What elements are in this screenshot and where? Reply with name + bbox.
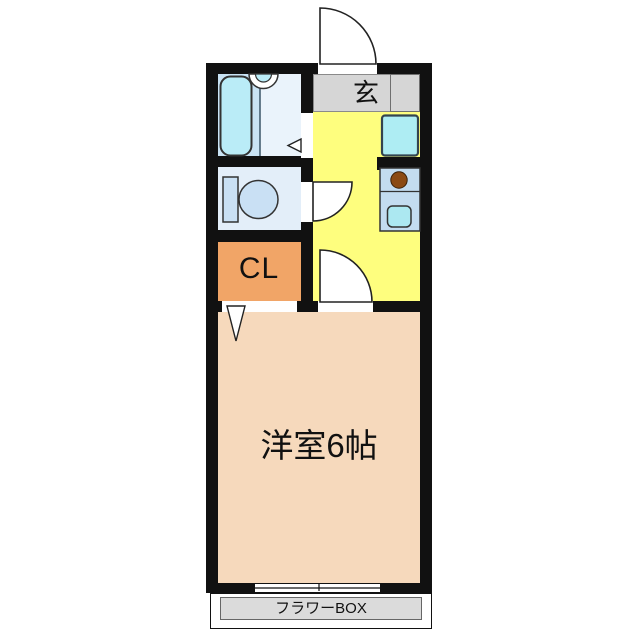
closet-label: CL [229,250,289,288]
room-door-arc [320,250,372,302]
floor-plan: 玄 CL 洋室6帖 フラワーBOX [0,0,640,640]
closet-door-triangle [227,306,245,341]
stove-burner-icon [391,172,407,188]
main-room-label: 洋室6帖 [218,424,420,468]
bathtub-icon [221,77,252,156]
fixtures-layer [0,0,640,640]
toilet-bowl-icon [239,181,278,219]
entrance-door-arc [320,8,376,64]
kitchen-sink-icon [388,206,412,227]
toilet-tank-icon [223,177,238,222]
bathroom-door-triangle [288,139,301,152]
entrance-label: 玄 [340,74,392,112]
flower-box-label: フラワーBOX [220,597,422,620]
toilet-door-arc [313,182,352,221]
washing-machine-space [382,116,418,156]
